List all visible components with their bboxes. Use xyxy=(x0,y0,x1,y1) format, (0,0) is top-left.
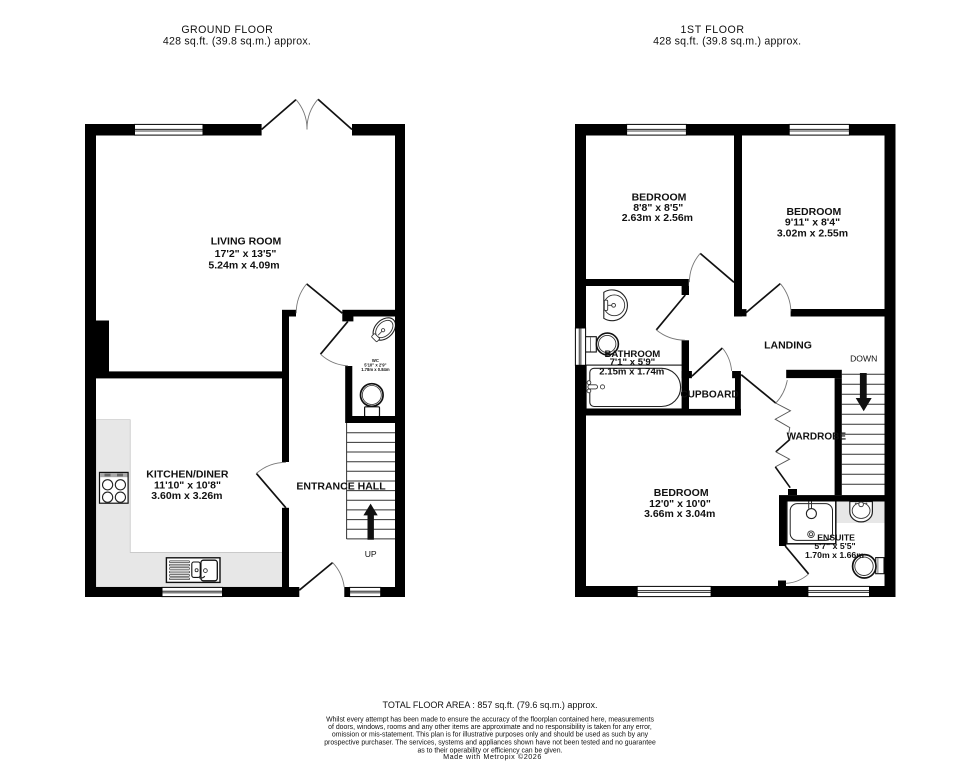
svg-text:LIVING ROOM: LIVING ROOM xyxy=(211,236,282,248)
svg-text:prospective purchaser. The ser: prospective purchaser. The services, sys… xyxy=(324,740,656,747)
svg-text:3.60m x 3.26m: 3.60m x 3.26m xyxy=(151,490,222,502)
svg-text:3.02m x 2.55m: 3.02m x 2.55m xyxy=(777,228,848,240)
svg-text:omission or mis-statement. Thi: omission or mis-statement. This plan is … xyxy=(332,732,649,739)
svg-text:Whilst every attempt has been: Whilst every attempt has been made to en… xyxy=(326,716,654,723)
svg-text:3.66m x 3.04m: 3.66m x 3.04m xyxy=(644,508,715,520)
svg-text:KITCHEN/DINER: KITCHEN/DINER xyxy=(146,468,229,480)
svg-text:17'2" x 13'5": 17'2" x 13'5" xyxy=(215,248,277,260)
svg-text:1.78m x 0.84m: 1.78m x 0.84m xyxy=(361,367,390,372)
svg-text:ENTRANCE HALL: ENTRANCE HALL xyxy=(296,480,386,492)
svg-text:2.15m x 1.74m: 2.15m x 1.74m xyxy=(599,367,664,378)
svg-text:428 sq.ft. (39.8 sq.m.) approx: 428 sq.ft. (39.8 sq.m.) approx. xyxy=(163,35,311,47)
svg-text:UP: UP xyxy=(365,549,377,559)
svg-text:1.70m x 1.66m: 1.70m x 1.66m xyxy=(805,550,864,560)
svg-text:TOTAL FLOOR AREA : 857 sq.ft.: TOTAL FLOOR AREA : 857 sq.ft. (79.6 sq.m… xyxy=(383,700,598,710)
svg-text:2.63m x 2.56m: 2.63m x 2.56m xyxy=(622,212,693,224)
svg-text:428 sq.ft. (39.8 sq.m.) approx: 428 sq.ft. (39.8 sq.m.) approx. xyxy=(653,35,801,47)
svg-text:Made with Metropix ©2026: Made with Metropix ©2026 xyxy=(443,752,542,761)
svg-text:CUPBOARD: CUPBOARD xyxy=(680,389,738,400)
svg-text:of doors, windows, rooms and a: of doors, windows, rooms and any other i… xyxy=(328,724,652,731)
svg-text:WARDROBE: WARDROBE xyxy=(787,432,847,443)
svg-text:LANDING: LANDING xyxy=(764,339,812,351)
svg-text:DOWN: DOWN xyxy=(850,354,877,364)
svg-text:5.24m x 4.09m: 5.24m x 4.09m xyxy=(208,259,279,271)
